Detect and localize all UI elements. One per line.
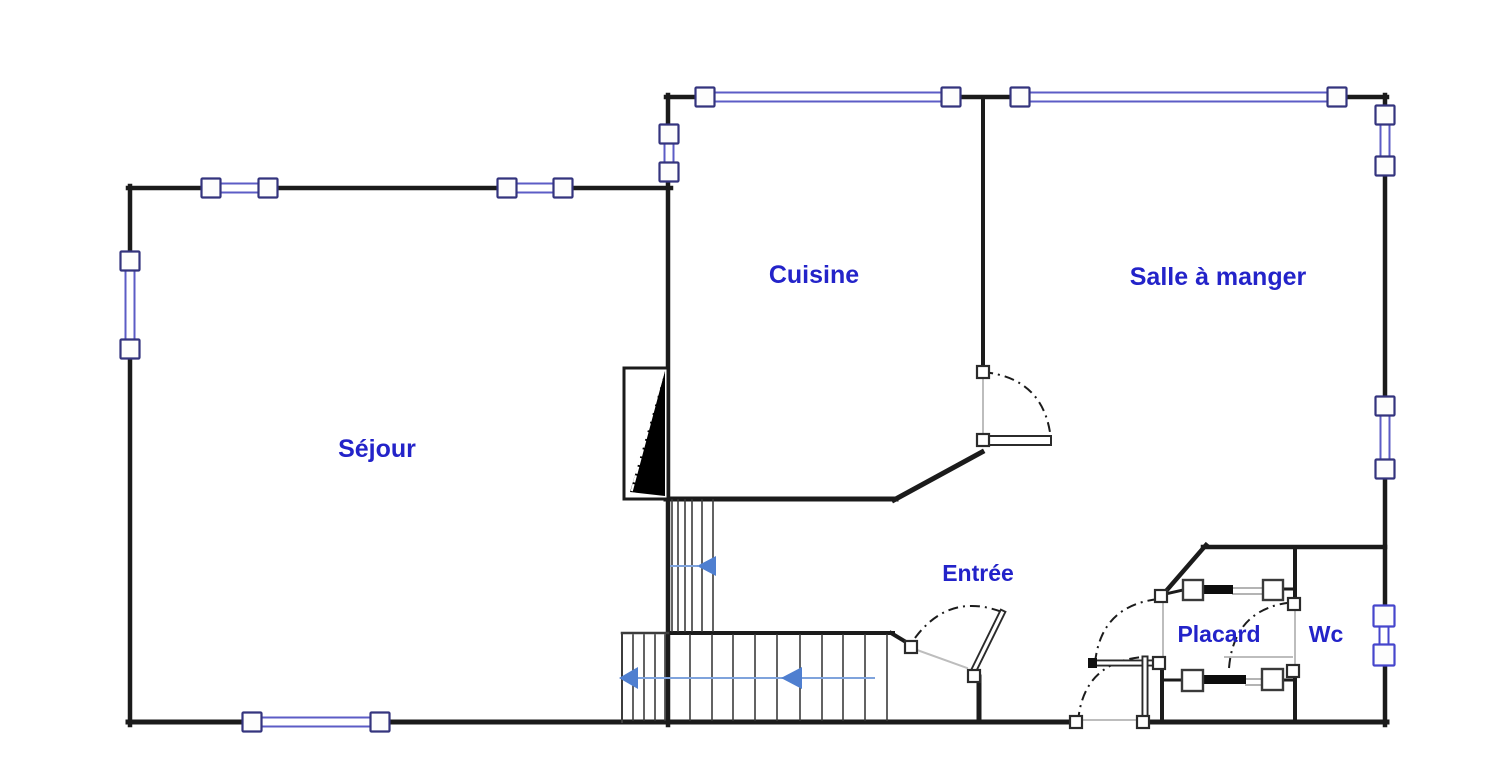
closet-bar	[1202, 585, 1233, 594]
door-post	[1287, 665, 1299, 677]
window-glazing	[1381, 123, 1390, 158]
window-glazing	[1381, 414, 1390, 461]
door-leaf	[985, 436, 1051, 445]
door-post	[1288, 598, 1300, 610]
window-frame	[498, 179, 517, 198]
window-frame	[1376, 397, 1395, 416]
window-frame	[1374, 606, 1395, 627]
floor-plan-drawing: SéjourCuisineSalle à mangerEntréePlacard…	[0, 0, 1496, 777]
window-frame	[121, 340, 140, 359]
window-frame	[1376, 106, 1395, 125]
door-post	[977, 434, 989, 446]
window-glazing	[665, 142, 674, 164]
window-frame	[243, 713, 262, 732]
door-post	[905, 641, 917, 653]
door-post	[1137, 716, 1149, 728]
closet-box	[1263, 580, 1283, 600]
window-frame	[1374, 645, 1395, 666]
window-frame	[660, 163, 679, 182]
window-glazing	[515, 184, 555, 193]
window-glazing	[1028, 93, 1329, 102]
window-glazing	[126, 269, 135, 341]
window-frame	[1376, 157, 1395, 176]
window-frame	[1011, 88, 1030, 107]
window-frame	[942, 88, 961, 107]
door-post	[1070, 716, 1082, 728]
window-glazing	[219, 184, 260, 193]
room-label-sejour: Séjour	[338, 435, 416, 463]
door-post	[968, 670, 980, 682]
window-frame	[202, 179, 221, 198]
room-label-salle-a-manger: Salle à manger	[1130, 263, 1307, 291]
window-frame	[371, 713, 390, 732]
room-label-wc: Wc	[1309, 621, 1344, 647]
floor-plan-page: SéjourCuisineSalle à mangerEntréePlacard…	[0, 0, 1496, 777]
window-frame	[121, 252, 140, 271]
door-post	[1153, 657, 1165, 669]
room-label-cuisine: Cuisine	[769, 261, 859, 289]
door-post	[977, 366, 989, 378]
door-post	[1155, 590, 1167, 602]
window-frame	[660, 125, 679, 144]
window-frame	[259, 179, 278, 198]
plan-background	[0, 0, 1496, 777]
room-label-placard: Placard	[1177, 621, 1260, 647]
room-label-entree: Entrée	[942, 560, 1014, 586]
door-leaf-cap	[1088, 658, 1097, 668]
window-glazing	[713, 93, 943, 102]
closet-bar	[1203, 675, 1246, 684]
window-frame	[696, 88, 715, 107]
window-frame	[1376, 460, 1395, 479]
closet-box	[1182, 670, 1203, 691]
window-glazing	[260, 718, 372, 727]
window-frame	[1328, 88, 1347, 107]
closet-box	[1262, 669, 1283, 690]
window-frame	[554, 179, 573, 198]
closet-box	[1183, 580, 1203, 600]
